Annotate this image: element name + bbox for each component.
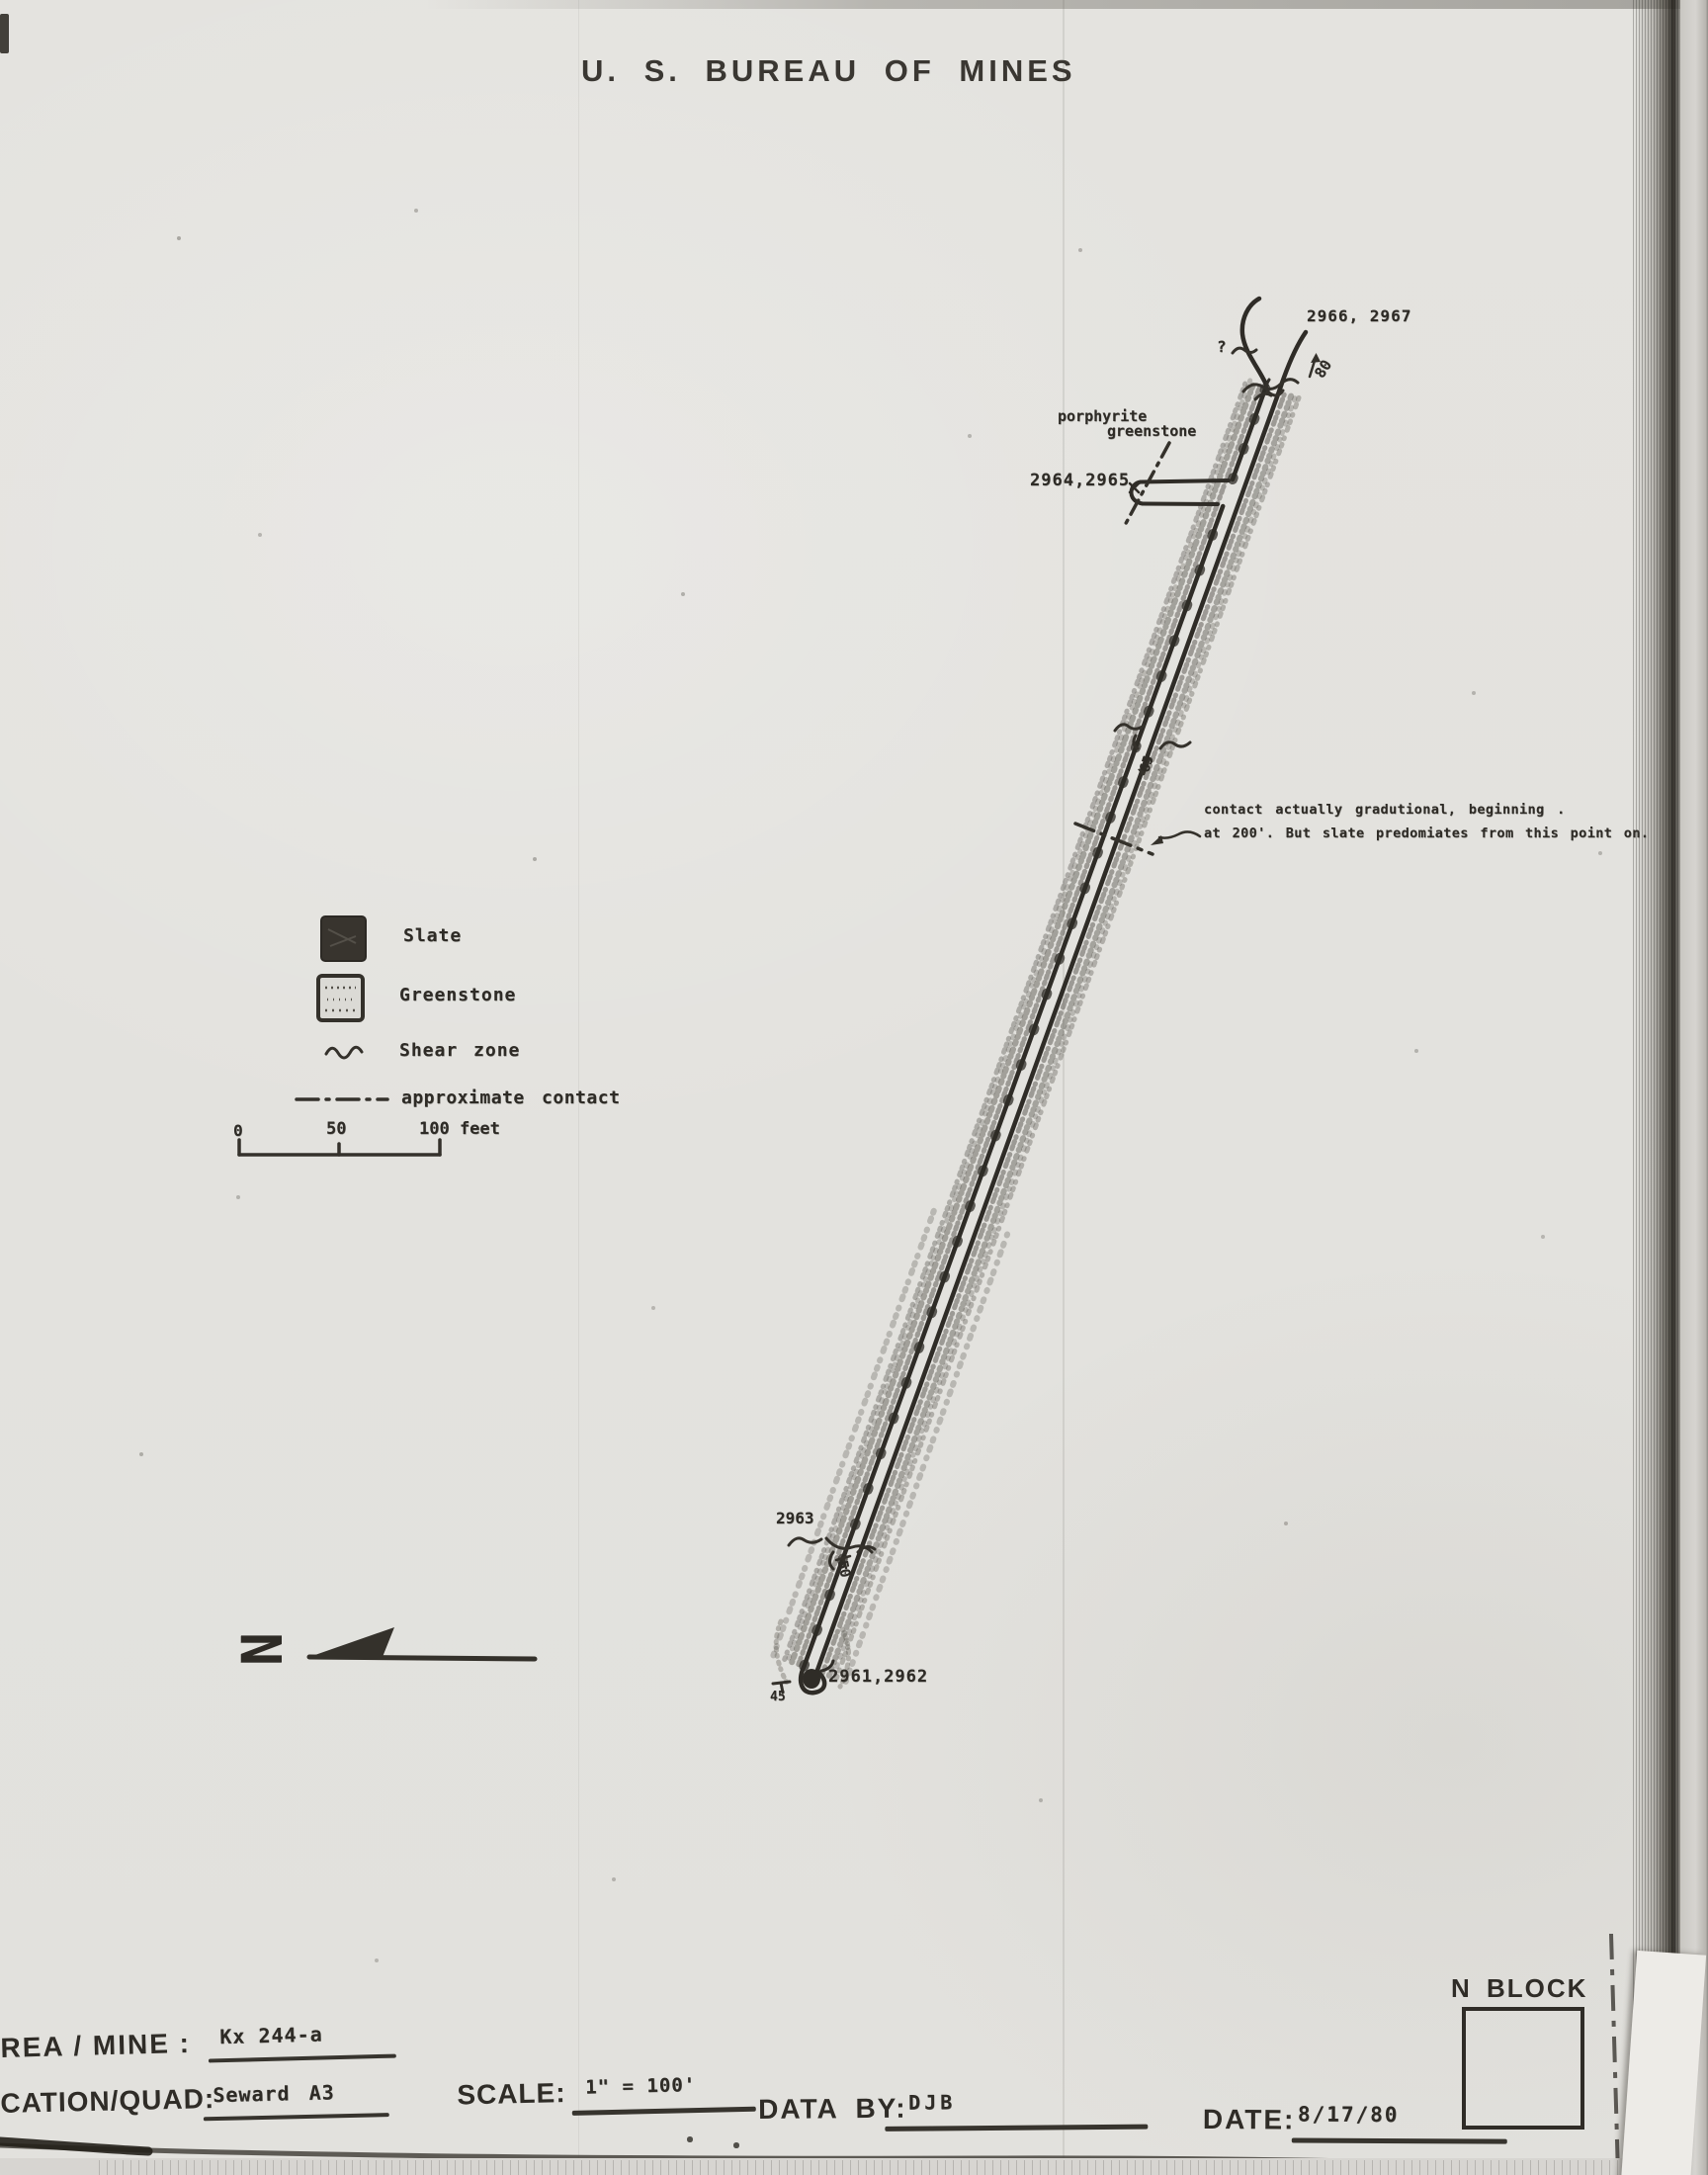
scan-bottom-strip-lines	[99, 2160, 1641, 2175]
n-block-label: N BLOCK	[1451, 1975, 1587, 2001]
quad-value: Seward A3	[213, 2082, 335, 2105]
legend-label-greenstone: Greenstone	[399, 987, 516, 1004]
legend-label-approx-contact: approximate contact	[401, 1089, 620, 1107]
legend-label-slate: Slate	[403, 927, 462, 945]
n-block-box	[1464, 2009, 1582, 2128]
adit-walls	[801, 299, 1306, 1693]
databy-value: DJB	[908, 2092, 956, 2112]
area-mine-value: Kx 244-a	[219, 2024, 323, 2046]
scale-label: SCALE:	[457, 2079, 566, 2109]
contact-note-line2: at 200'. But slate predomiates from this…	[1204, 827, 1649, 841]
scale-tick-0: 0	[233, 1123, 243, 1139]
date-value: 8/17/80	[1298, 2105, 1400, 2127]
scan-right-edge-outer	[1680, 0, 1708, 2175]
contact-note-line1: contact actually gradutional, beginning …	[1204, 804, 1566, 818]
north-letter: N	[231, 1621, 287, 1677]
greenstone-swatch	[318, 976, 363, 1020]
dip-value-lower: 50	[835, 1559, 852, 1578]
slate-swatch	[321, 916, 366, 961]
north-arrow	[309, 1627, 535, 1659]
sample-label-2964-2965: 2964,2965	[1030, 473, 1130, 489]
dip-value-portal: 45	[770, 1691, 786, 1703]
unit-label-line2: greenstone	[1107, 424, 1196, 439]
area-mine-label: REA / MINE :	[0, 2030, 191, 2062]
sample-label-2963: 2963	[776, 1511, 814, 1526]
query-mark: ?	[1217, 339, 1227, 355]
legend-symbols	[297, 916, 387, 1099]
scan-right-dash-line	[1611, 1934, 1618, 2175]
sample-label-2966-2967: 2966, 2967	[1307, 308, 1411, 324]
scan-right-edge-streaks	[1633, 0, 1682, 2175]
shear-zone-symbol	[326, 1047, 362, 1058]
date-label: DATE:	[1203, 2106, 1296, 2133]
legend-label-shear-zone: Shear zone	[399, 1042, 520, 1060]
scale-value: 1" = 100'	[585, 2076, 696, 2098]
quad-label: CATION/QUAD:	[0, 2085, 214, 2118]
scale-bar	[239, 1140, 440, 1155]
databy-label: DATA BY:	[758, 2095, 907, 2124]
note-leader-arrow	[1151, 831, 1200, 845]
sample-label-2961-2962: 2961,2962	[828, 1669, 928, 1686]
scanned-mine-map-page: U. S. BUREAU OF MINES	[0, 0, 1708, 2175]
mine-map-drawing	[0, 0, 1708, 2175]
scale-tick-100: 100 feet	[419, 1121, 500, 1138]
scale-tick-50: 50	[326, 1121, 346, 1138]
